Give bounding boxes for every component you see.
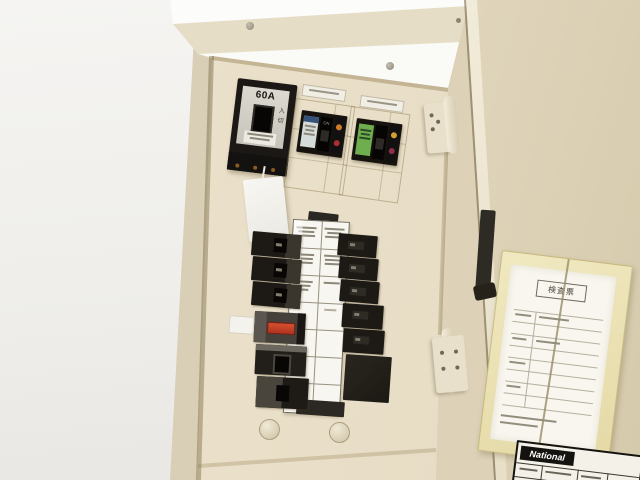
elb-breaker-2 [351,118,402,166]
elb-breaker-1: ON [296,110,347,158]
test-button-crimson[interactable] [388,148,395,155]
main-breaker-faceplate: 60A 入 切 [236,86,290,149]
blank-slot-cover [343,354,392,403]
test-button-yellow[interactable] [391,132,398,139]
main-breaker-rating: 60A [242,88,290,105]
branch-breaker-red [253,311,306,345]
branch-breaker [254,344,307,377]
small-white-sticker [228,315,254,335]
test-button-orange[interactable] [336,124,343,131]
main-breaker-toggle[interactable] [251,104,275,134]
test-button-red[interactable] [333,140,340,147]
branch-breaker [337,233,378,258]
frame-screw [246,22,254,30]
elb-name-label [300,115,319,148]
branch-breaker [251,256,302,284]
document-pocket: 検査票 [477,250,633,467]
panel-screw-cap [259,419,280,440]
branch-breaker [341,303,384,330]
breaker-toggle[interactable] [276,385,290,402]
main-breaker-sticker [243,130,276,146]
door-hinge-bottom [427,327,473,402]
branch-breaker [338,256,379,281]
door-hinge-top [423,95,464,162]
branch-breaker [342,328,385,355]
frame-screw [386,62,394,70]
breaker-panel-photo: 60A 入 切 ON [0,0,640,480]
branch-breaker [339,279,380,304]
vent-hole [456,18,461,23]
elb-test-buttons [385,126,400,163]
panel-screw-cap [329,422,350,443]
branch-breaker [255,376,309,410]
elb-name-label [355,123,374,156]
elb-test-buttons [330,118,345,155]
breaker-toggle[interactable] [272,354,291,375]
main-breaker-onoff-label: 入 切 [275,106,286,127]
red-toggle[interactable] [267,322,296,335]
branch-breaker [251,231,302,259]
branch-breaker [251,281,302,309]
